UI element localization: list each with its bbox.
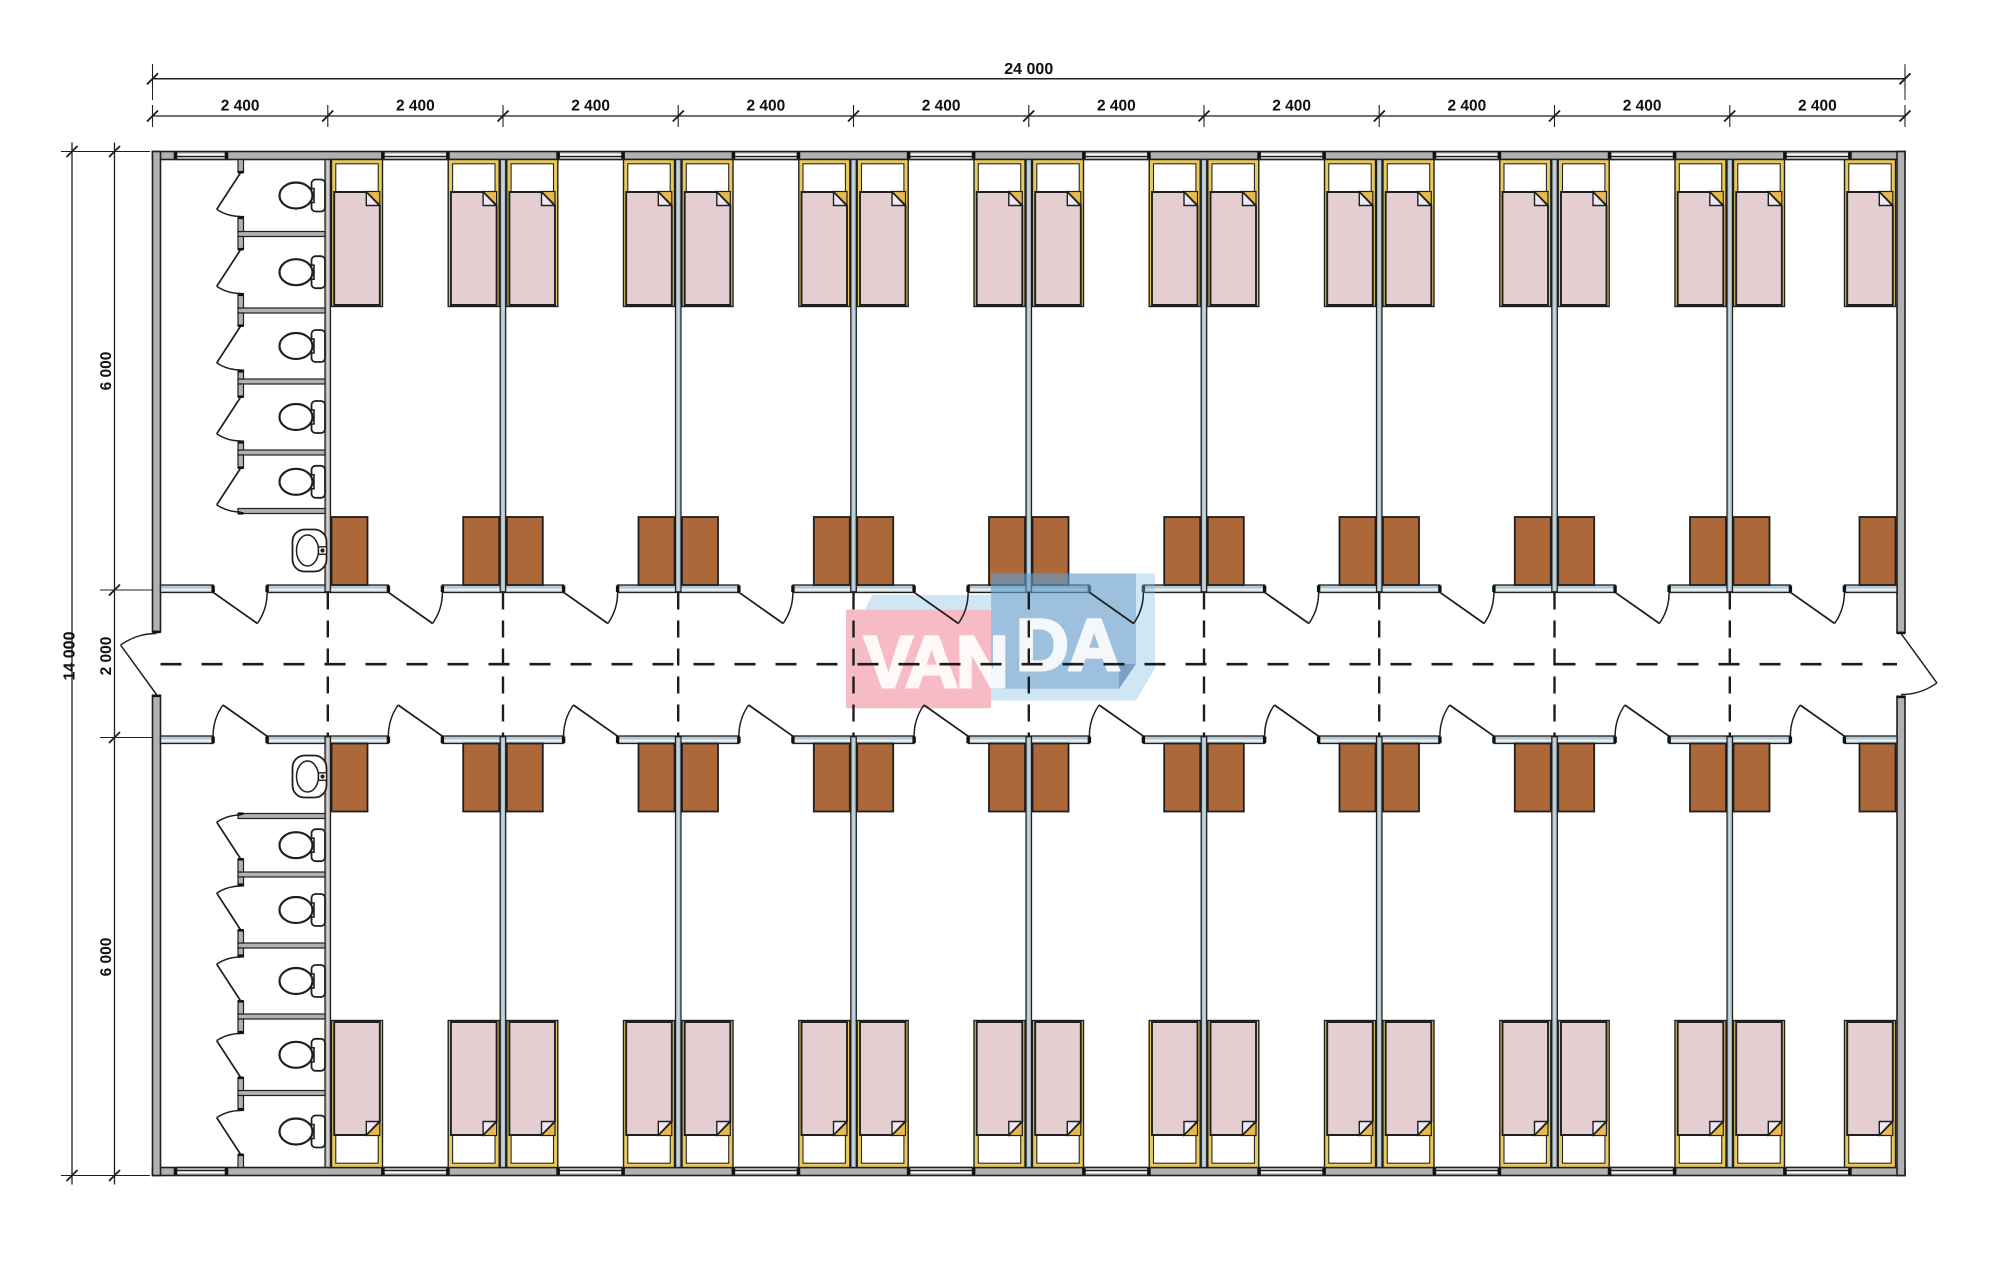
svg-text:2 000: 2 000	[98, 637, 115, 676]
svg-text:2 400: 2 400	[396, 98, 435, 115]
svg-text:2 400: 2 400	[1097, 98, 1136, 115]
svg-text:6 000: 6 000	[98, 352, 115, 391]
svg-text:2 400: 2 400	[1623, 98, 1662, 115]
svg-text:2 400: 2 400	[221, 98, 260, 115]
svg-text:2 400: 2 400	[922, 98, 961, 115]
svg-text:VAN: VAN	[864, 622, 1007, 703]
svg-text:2 400: 2 400	[1272, 98, 1311, 115]
svg-text:6 000: 6 000	[98, 938, 115, 977]
svg-text:24 000: 24 000	[1004, 61, 1053, 78]
svg-text:2 400: 2 400	[746, 98, 785, 115]
svg-text:14 000: 14 000	[62, 631, 79, 680]
svg-text:2 400: 2 400	[1447, 98, 1486, 115]
svg-text:DA: DA	[1016, 605, 1119, 686]
svg-text:2 400: 2 400	[1798, 98, 1837, 115]
svg-text:2 400: 2 400	[571, 98, 610, 115]
